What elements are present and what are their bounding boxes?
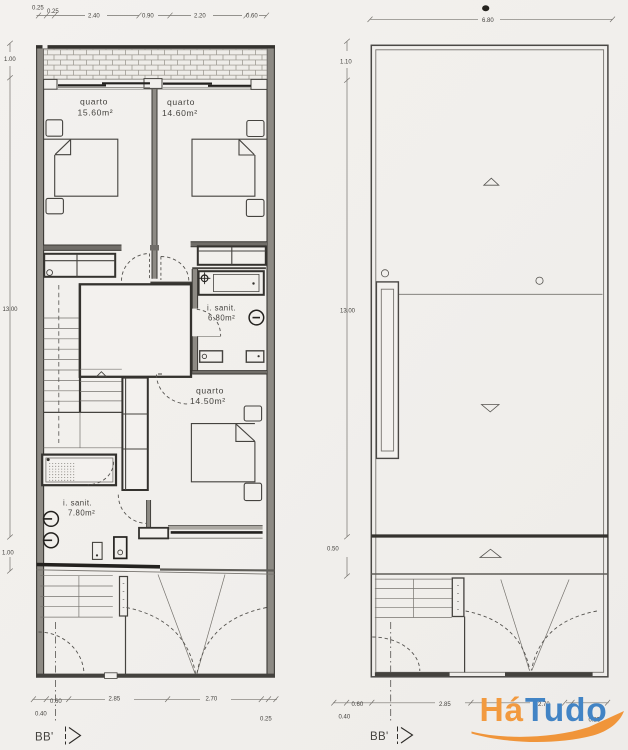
svg-text:0.25: 0.25 [260,717,272,723]
svg-text:2.70: 2.70 [206,696,218,702]
svg-text:0.60: 0.60 [246,14,258,20]
svg-text:quarto: quarto [80,97,108,107]
svg-text:0.50: 0.50 [327,547,339,553]
svg-text:13.00: 13.00 [340,309,356,315]
svg-text:7.80m²: 7.80m² [68,508,95,517]
svg-text:1.10: 1.10 [340,60,352,66]
svg-text:0.40: 0.40 [339,714,351,720]
svg-text:0.60: 0.60 [50,699,62,705]
svg-text:i. sanit.: i. sanit. [207,304,236,313]
svg-text:0.60: 0.60 [352,702,364,708]
svg-text:Há: Há [480,692,524,729]
svg-text:quarto: quarto [196,386,224,396]
svg-text:0.25: 0.25 [47,9,59,15]
svg-text:14.50m²: 14.50m² [190,396,226,406]
svg-text:Tudo: Tudo [525,692,608,729]
svg-text:BB': BB' [35,732,53,744]
svg-text:6.80: 6.80 [482,18,494,24]
svg-text:0.25: 0.25 [32,6,44,12]
svg-text:6.80m²: 6.80m² [208,314,235,323]
svg-text:2.85: 2.85 [439,702,451,708]
svg-text:1.00: 1.00 [4,57,16,63]
svg-text:1.00: 1.00 [2,551,14,557]
svg-text:15.60m²: 15.60m² [78,108,114,118]
svg-text:BB': BB' [370,731,388,743]
svg-text:2.85: 2.85 [109,696,121,702]
svg-text:0.40: 0.40 [35,712,47,718]
svg-text:13.00: 13.00 [3,307,19,313]
svg-text:0.90: 0.90 [142,14,154,20]
svg-text:14.60m²: 14.60m² [162,108,198,118]
svg-text:2.40: 2.40 [88,14,100,20]
svg-text:2.20: 2.20 [194,14,206,20]
svg-text:i. sanit.: i. sanit. [63,499,92,508]
svg-text:quarto: quarto [167,97,195,107]
